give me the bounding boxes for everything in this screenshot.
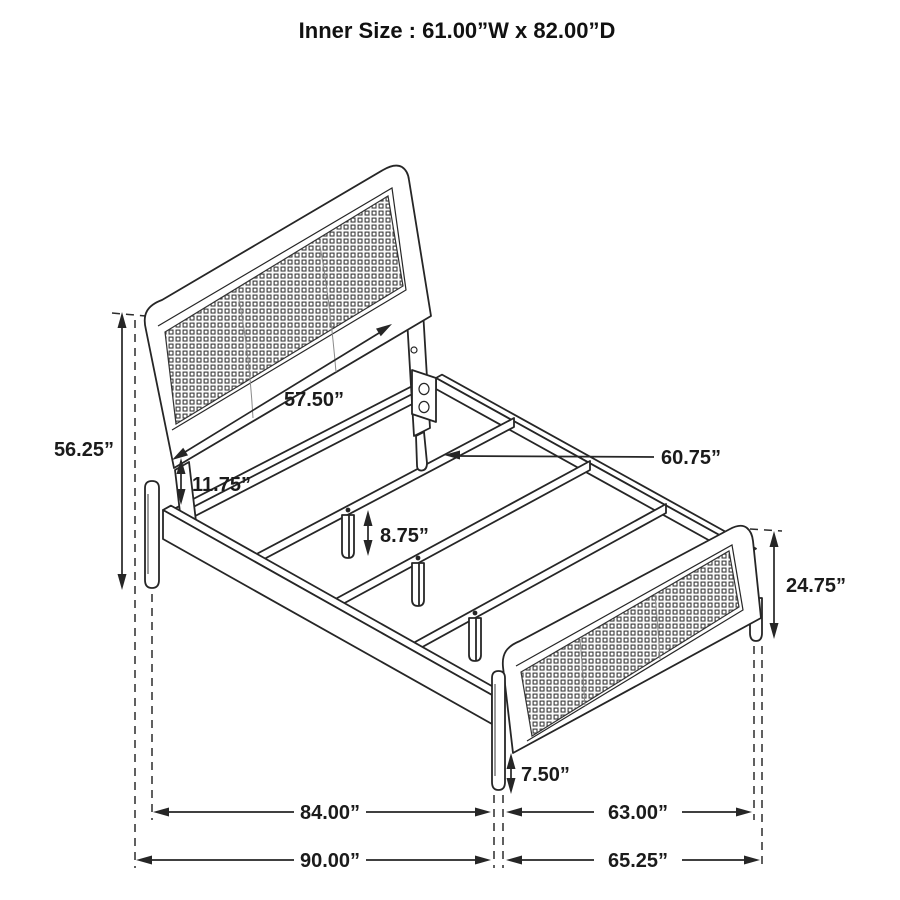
dimension-inner-frame-depth: 84.00” (153, 802, 491, 824)
bed-dimension-diagram-page: Inner Size : 61.00”W x 82.00”D (0, 0, 900, 900)
side-rail-far (436, 378, 750, 563)
bracket-pin (416, 432, 427, 471)
dimension-label-headboard-rail-gap: 11.75” (192, 474, 251, 496)
bed-dimension-diagram: Inner Size : 61.00”W x 82.00”D (0, 0, 900, 900)
dimension-label-headboard-height: 56.25” (54, 439, 114, 461)
inner-size-title: Inner Size : 61.00”W x 82.00”D (299, 18, 616, 43)
slat-support-leg-1 (342, 515, 354, 558)
extension-tick-footboard-top (750, 529, 782, 531)
dimension-label-overall-depth: 90.00” (300, 850, 360, 872)
dimension-footboard-width: 63.00” (506, 802, 752, 824)
slat-3-screw-dot (473, 611, 478, 616)
dimension-footboard-leg-height: 7.50” (507, 753, 570, 794)
dimension-label-inner-frame-depth: 84.00” (300, 802, 360, 824)
slat-1-screw-dot (346, 508, 351, 513)
footboard (492, 526, 762, 790)
dimension-label-overall-width: 65.25” (608, 850, 668, 872)
slat-2-screw-dot (416, 556, 421, 561)
dimension-overall-depth: 90.00” (136, 850, 491, 872)
dimension-footboard-height: 24.75” (770, 531, 847, 639)
slat-support-leg-2 (412, 563, 424, 606)
dimension-label-support-leg-height: 8.75” (380, 525, 429, 547)
dimension-label-headboard-width: 57.50” (284, 389, 344, 411)
dimension-label-footboard-leg-height: 7.50” (521, 764, 570, 786)
dimension-headboard-height: 56.25” (54, 312, 127, 590)
extension-tick-headboard-top (112, 313, 146, 316)
mounting-bracket (412, 370, 436, 422)
dimension-label-slat-length: 60.75” (661, 447, 721, 469)
side-rail-near-top (163, 506, 500, 695)
dimension-label-footboard-height: 24.75” (786, 575, 846, 597)
slat-support-leg-3 (469, 618, 481, 661)
dimension-support-leg-height: 8.75” (364, 510, 429, 556)
footboard-front-leg (492, 671, 505, 790)
dimension-overall-width: 65.25” (506, 850, 760, 872)
dimension-label-footboard-width: 63.00” (608, 802, 668, 824)
